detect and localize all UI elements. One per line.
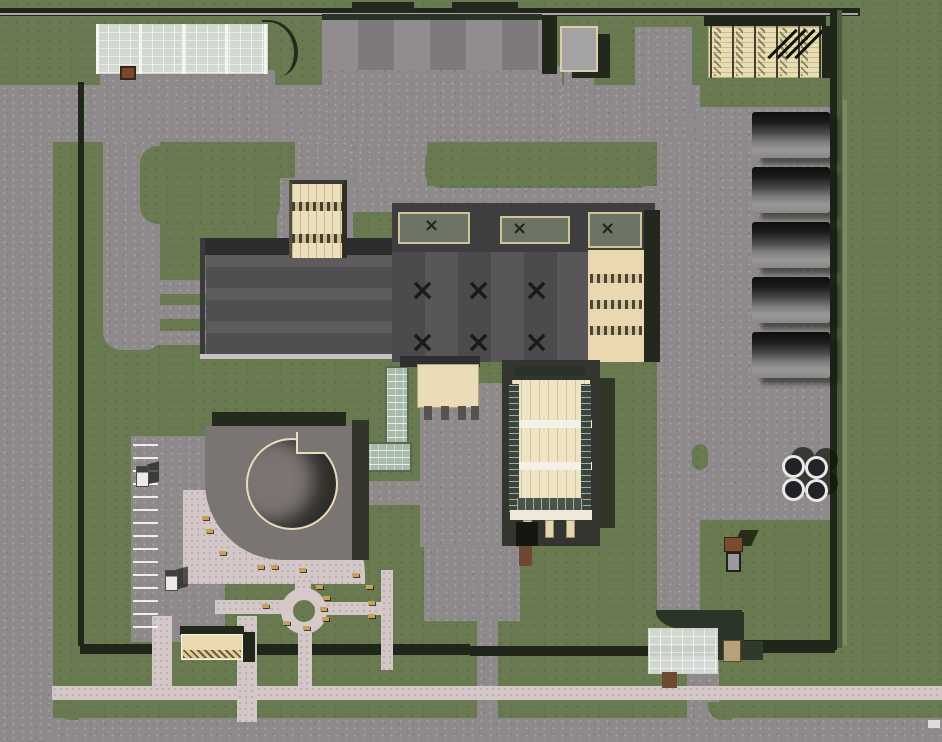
main-left-roof-eave — [200, 354, 396, 359]
bench — [368, 614, 375, 618]
storage-tank — [805, 479, 828, 502]
car — [136, 466, 149, 487]
walkway-vertical — [381, 570, 393, 670]
south-hall-band — [510, 462, 592, 470]
glass-corridor — [385, 366, 409, 450]
grass-island — [425, 146, 653, 188]
greenhouse-rib — [264, 24, 267, 74]
roadside-mark — [928, 720, 940, 728]
grass-island — [140, 146, 280, 224]
canopy-column — [471, 406, 479, 420]
walkway-horizontal — [215, 600, 285, 614]
roof-truss-mark: × — [410, 278, 435, 304]
boundary-wall-bottom — [80, 644, 158, 654]
planter-box — [120, 66, 136, 80]
bench — [303, 626, 310, 630]
bottom-left-junction — [0, 700, 53, 742]
roof-truss-mark: × — [410, 330, 435, 356]
bench — [366, 585, 373, 589]
canopy-column — [458, 406, 466, 420]
roof-tower — [289, 180, 347, 258]
main-left-roof-west-edge — [200, 238, 205, 354]
kiosk-canopy-hatch — [183, 650, 241, 658]
roof-truss-mark: × — [466, 330, 491, 356]
boundary-wall-bottom — [245, 644, 470, 655]
walkway-vertical — [298, 632, 312, 688]
utility-bldg — [560, 26, 598, 72]
pergola-shadow — [704, 16, 826, 26]
warehouse-shadow — [542, 16, 557, 74]
round-hall-east-edge — [352, 420, 369, 560]
canopy-column — [424, 406, 432, 420]
bench — [283, 621, 290, 625]
roof-truss-mark: × — [524, 330, 549, 356]
south-hall-column — [545, 520, 554, 538]
round-hall-step — [296, 432, 326, 454]
greenhouse-rib — [139, 24, 142, 74]
hedge-right — [837, 10, 842, 648]
kiosk-body — [726, 552, 741, 572]
boundary-wall-right — [830, 8, 837, 650]
pergola-post — [754, 26, 756, 78]
pergola-lattice — [758, 28, 765, 76]
storage-hut — [752, 332, 830, 378]
bottom-road — [0, 718, 942, 742]
topright-vertical-road — [635, 27, 692, 142]
bench — [206, 529, 213, 533]
bench — [368, 601, 375, 605]
south-hall-glass-row — [517, 498, 583, 510]
gate-dark-block — [741, 641, 763, 660]
pergola-shadow-right — [822, 26, 832, 78]
greenhouse-apron — [100, 70, 275, 142]
south-hall-door — [516, 522, 538, 546]
storage-hut — [752, 112, 830, 158]
roof-tower-band — [292, 234, 342, 243]
roof-truss-mark-small: × — [424, 218, 439, 234]
roof-truss-mark: × — [524, 278, 549, 304]
gate-tan-block — [723, 640, 741, 662]
south-hall-plinth — [510, 510, 592, 520]
grass-notch — [692, 444, 708, 470]
midtop-apron — [322, 66, 562, 142]
roof-beige-panel-band — [590, 326, 642, 335]
pergola-lattice — [714, 28, 721, 76]
roof-beige-panel-band — [590, 274, 642, 283]
storage-hut — [752, 167, 830, 213]
storage-hut — [752, 222, 830, 268]
south-hall-beige-roof — [512, 380, 590, 512]
kiosk-canopy-shadow — [243, 632, 255, 662]
storage-tank — [782, 455, 805, 478]
pergola-lattice — [736, 28, 743, 76]
roof-truss-mark-small: × — [600, 221, 615, 237]
left-road — [0, 85, 53, 742]
storage-tank — [782, 478, 805, 501]
greenhouse-rib — [182, 24, 185, 74]
gate-post — [662, 672, 677, 688]
car — [165, 570, 178, 591]
edge-path — [843, 100, 847, 645]
roof-truss-mark-small: × — [512, 221, 527, 237]
south-hall-planter — [519, 546, 532, 566]
boundary-wall-left — [78, 82, 84, 646]
roof-truss-mark: × — [466, 278, 491, 304]
south-apron-lower — [424, 547, 520, 621]
south-hall-shadow — [600, 378, 615, 528]
site-plan: ××××××××× — [0, 0, 942, 742]
south-hall-band — [510, 420, 592, 428]
walkway-horizontal — [325, 602, 389, 615]
bench — [219, 551, 226, 555]
canopy-column — [441, 406, 449, 420]
bench — [322, 617, 329, 621]
pergola-post — [732, 26, 734, 78]
bench — [323, 596, 330, 600]
bench — [299, 568, 306, 572]
roof-tower-band — [292, 202, 342, 211]
south-hall-glass-side — [509, 384, 519, 512]
south-hall-column — [566, 520, 575, 538]
skylight — [500, 216, 570, 244]
south-hall-glass-side — [581, 384, 591, 512]
bench — [262, 604, 269, 608]
south-hall-clerestory — [515, 366, 585, 376]
small-bldg-path — [564, 70, 594, 142]
bench — [271, 565, 278, 569]
storage-tank — [805, 456, 828, 479]
bench — [257, 565, 264, 569]
south-vertical-path — [477, 619, 498, 720]
roof-beige-panel-band — [590, 300, 642, 309]
main-right-roof-east-edge — [644, 210, 660, 362]
entrance-canopy — [417, 364, 479, 408]
kiosk-roof — [724, 537, 743, 552]
bench — [320, 607, 327, 611]
bench — [352, 573, 359, 577]
gate-greenhouse — [648, 628, 718, 674]
bench — [316, 585, 323, 589]
right-vertical-road — [657, 140, 700, 612]
greenhouse-rib — [96, 24, 99, 74]
pergola-post — [710, 26, 712, 78]
greenhouse-rib — [225, 24, 228, 74]
warehouse-roof — [322, 14, 542, 70]
storage-hut — [752, 277, 830, 323]
bottom-walkway — [52, 686, 942, 700]
warehouse-ridge — [352, 2, 414, 13]
main-left-roof — [206, 255, 393, 354]
warehouse-ridge — [452, 2, 518, 13]
bench — [202, 516, 209, 520]
